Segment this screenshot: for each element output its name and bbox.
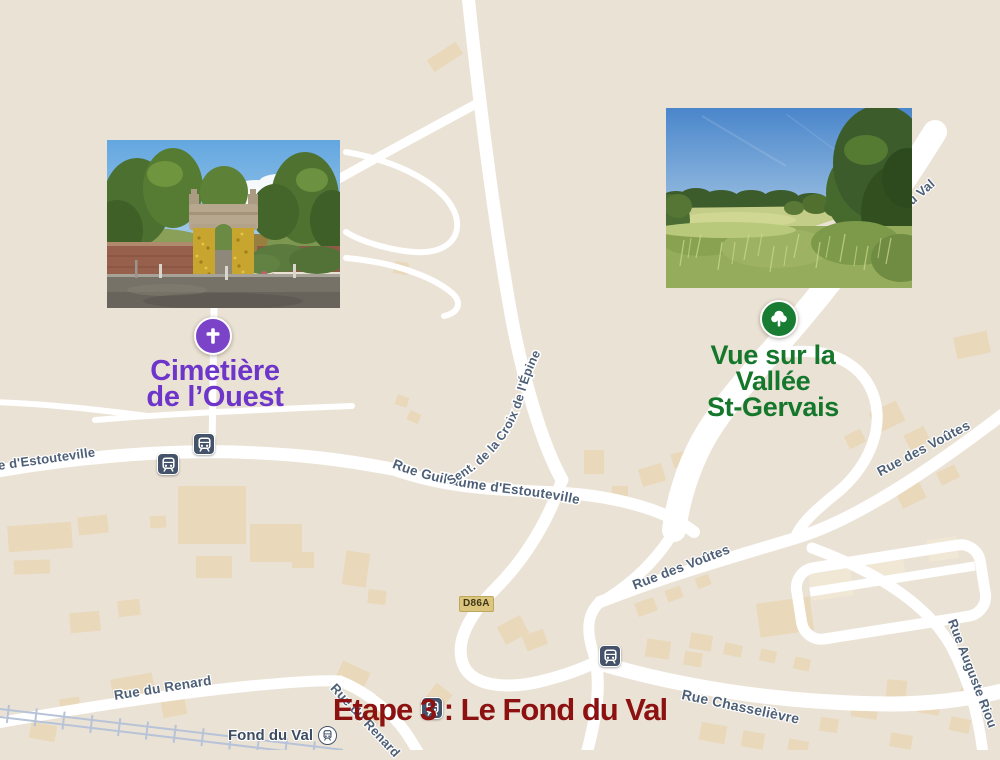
valley-view-label: Vue sur la Vallée St-Gervais bbox=[707, 342, 839, 421]
cemetery-label-line2: de l’Ouest bbox=[146, 384, 283, 410]
cross-icon bbox=[202, 325, 224, 347]
valley-label-line3: St-Gervais bbox=[707, 394, 839, 420]
street-label-sentier: Sent. de la Croix de l'Épine bbox=[445, 348, 544, 488]
stage-title: Etape 3 : Le Fond du Val bbox=[0, 692, 1000, 728]
station-name: Fond du Val bbox=[228, 727, 313, 744]
tree-icon bbox=[768, 308, 790, 330]
valley-label-line1: Vue sur la bbox=[707, 342, 839, 368]
valley-label-line2: Vallée bbox=[707, 368, 839, 394]
road-badge-d86a: D86A bbox=[459, 596, 494, 612]
svg-text:Sent. de la Croix de l'Épine: Sent. de la Croix de l'Épine bbox=[445, 348, 544, 488]
bus-stop-icon[interactable] bbox=[193, 433, 215, 455]
cemetery-label: Cimetière de l’Ouest bbox=[146, 358, 283, 410]
cemetery-marker[interactable] bbox=[194, 317, 232, 355]
viewpoint-marker[interactable] bbox=[760, 300, 798, 338]
bus-stop-icon[interactable] bbox=[157, 453, 179, 475]
photo-valley-view bbox=[666, 108, 912, 288]
photo-cemetery-entrance bbox=[107, 140, 340, 308]
train-station-icon[interactable] bbox=[318, 726, 337, 745]
station-label-fond-du-val: Fond du Val bbox=[228, 726, 337, 745]
map-canvas[interactable]: Rue Guillaume d'Estouteville Sent. de la… bbox=[0, 0, 1000, 750]
bus-stop-icon[interactable] bbox=[599, 645, 621, 667]
